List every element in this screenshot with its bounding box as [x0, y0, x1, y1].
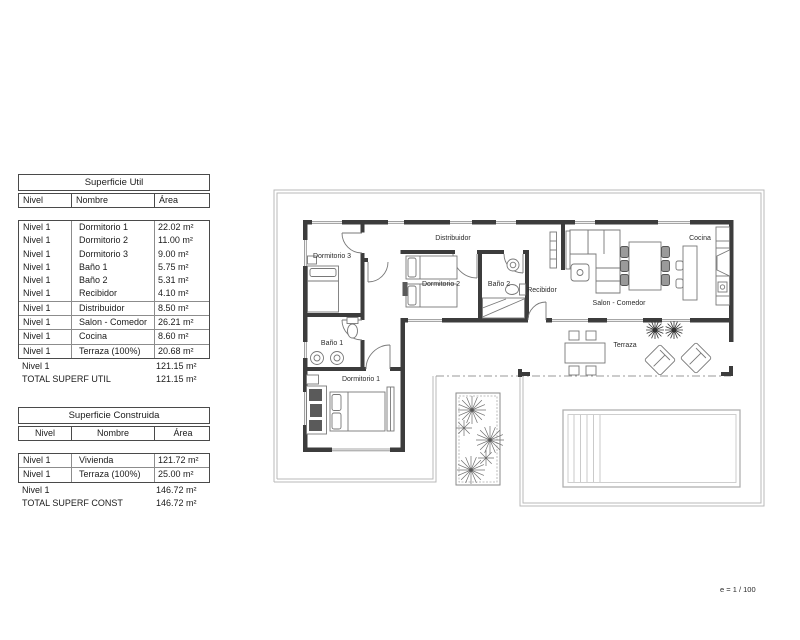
superficie-util-subtotal: Nivel 1 121.15 m² [18, 360, 210, 373]
cell-nivel: Nivel 1 [19, 468, 71, 481]
subtotal-area: 146.72 m² [153, 484, 210, 497]
cell-nombre: Terraza (100%) [71, 345, 154, 358]
table-row: Nivel 1 Baño 1 5.75 m² [19, 261, 209, 274]
floorplan-sheet: Dormitorio 3 Distribuidor Dormitorio 2 B… [0, 0, 800, 640]
cell-area: 5.31 m² [154, 274, 211, 287]
total-label: TOTAL SUPERF UTIL [18, 373, 153, 386]
table-row: Nivel 1 Dormitorio 3 9.00 m² [19, 248, 209, 261]
cell-nombre: Distribuidor [71, 302, 154, 315]
room-label-dormitorio3: Dormitorio 3 [313, 253, 351, 260]
header-nivel: Nivel [19, 427, 71, 440]
cell-nombre: Salon - Comedor [71, 316, 154, 329]
superficie-construida-rows: Nivel 1 Vivienda 121.72 m² Nivel 1 Terra… [18, 453, 210, 483]
cell-nivel: Nivel 1 [19, 316, 71, 329]
fixtures-bano2 [483, 259, 526, 318]
lounge-chairs [644, 342, 711, 375]
header-nivel: Nivel [19, 194, 71, 207]
tv-panel-salon [566, 231, 570, 269]
total-area: 121.15 m² [153, 373, 210, 386]
header-nombre: Nombre [71, 427, 154, 440]
room-label-salon-comedor: Salon - Comedor [593, 300, 646, 307]
room-label-cocina: Cocina [689, 235, 711, 242]
closet-dormitorio1 [387, 387, 394, 431]
sofa-salon [570, 230, 620, 293]
cell-area: 25.00 m² [154, 468, 211, 481]
total-label: TOTAL SUPERF CONST [18, 497, 153, 510]
subtotal-nivel: Nivel 1 [18, 360, 70, 373]
cell-area: 20.68 m² [154, 345, 211, 358]
superficie-util-table: Superficie Util Nivel Nombre Área Nivel … [18, 174, 210, 386]
table-row: Nivel 1 Dormitorio 1 22.02 m² [19, 221, 209, 234]
cell-nivel: Nivel 1 [19, 261, 71, 274]
room-label-dormitorio2: Dormitorio 2 [422, 281, 460, 288]
terrace-plants [646, 321, 683, 339]
kitchen-island [676, 246, 697, 300]
toilet-bano1 [347, 318, 358, 339]
kitchen-counter [716, 227, 730, 305]
superficie-util-total: TOTAL SUPERF UTIL 121.15 m² [18, 373, 210, 386]
cell-nombre: Dormitorio 2 [71, 234, 154, 247]
cell-nombre: Baño 2 [71, 274, 154, 287]
scale-note: e = 1 / 100 [720, 585, 756, 594]
table-row: Nivel 1 Terraza (100%) 20.68 m² [19, 344, 209, 358]
cell-nombre: Terraza (100%) [71, 468, 154, 481]
dining-table [621, 242, 670, 290]
cell-nombre: Dormitorio 3 [71, 248, 154, 261]
header-nombre: Nombre [71, 194, 154, 207]
header-area: Área [154, 427, 211, 440]
header-area: Área [154, 194, 211, 207]
coffee-table-salon [571, 264, 589, 281]
cell-nombre: Vivienda [71, 454, 154, 467]
subtotal-area: 121.15 m² [153, 360, 210, 373]
sinks-bano1 [311, 352, 344, 365]
room-label-bano2: Baño 2 [488, 281, 510, 288]
cell-nivel: Nivel 1 [19, 274, 71, 287]
cell-area: 8.50 m² [154, 302, 211, 315]
superficie-construida-total: TOTAL SUPERF CONST 146.72 m² [18, 497, 210, 510]
superficie-util-header: Nivel Nombre Área [18, 193, 210, 208]
bed-dormitorio1 [330, 392, 385, 431]
cell-area: 11.00 m² [154, 234, 211, 247]
cell-area: 22.02 m² [154, 221, 211, 234]
table-row: Nivel 1 Recibidor 4.10 m² [19, 287, 209, 300]
bed-dormitorio3 [308, 256, 339, 312]
table-row: Nivel 1 Terraza (100%) 25.00 m² [19, 467, 209, 481]
pool-steps [574, 415, 600, 482]
superficie-construida-table: Superficie Construida Nivel Nombre Área … [18, 407, 210, 510]
cell-nivel: Nivel 1 [19, 221, 71, 234]
table-row: Nivel 1 Dormitorio 2 11.00 m² [19, 234, 209, 247]
cell-nivel: Nivel 1 [19, 454, 71, 467]
room-label-dormitorio1: Dormitorio 1 [342, 376, 380, 383]
room-label-bano1: Baño 1 [321, 340, 343, 347]
cell-nivel: Nivel 1 [19, 345, 71, 358]
cell-nivel: Nivel 1 [19, 330, 71, 343]
room-label-distribuidor: Distribuidor [435, 235, 470, 242]
cell-nivel: Nivel 1 [19, 234, 71, 247]
room-label-terraza: Terraza [613, 342, 636, 349]
table-row: Nivel 1 Distribuidor 8.50 m² [19, 301, 209, 315]
superficie-construida-subtotal: Nivel 1 146.72 m² [18, 484, 210, 497]
cell-area: 8.60 m² [154, 330, 211, 343]
table-row: Nivel 1 Cocina 8.60 m² [19, 329, 209, 343]
cabinet-recibidor [550, 232, 557, 268]
cell-nivel: Nivel 1 [19, 248, 71, 261]
room-label-recibidor: Recibidor [527, 287, 557, 294]
superficie-construida-header: Nivel Nombre Área [18, 426, 210, 441]
superficie-util-rows: Nivel 1 Dormitorio 1 22.02 m² Nivel 1 Do… [18, 220, 210, 359]
cell-nombre: Baño 1 [71, 261, 154, 274]
swimming-pool [563, 410, 740, 487]
planter [456, 393, 504, 485]
cell-nombre: Cocina [71, 330, 154, 343]
cell-nivel: Nivel 1 [19, 287, 71, 300]
cell-nombre: Dormitorio 1 [71, 221, 154, 234]
terrace-table [565, 331, 605, 375]
table-row: Nivel 1 Baño 2 5.31 m² [19, 274, 209, 287]
superficie-construida-title: Superficie Construida [18, 407, 210, 424]
subtotal-nivel: Nivel 1 [18, 484, 70, 497]
cell-area: 121.72 m² [154, 454, 211, 467]
furniture [307, 227, 730, 434]
cell-area: 26.21 m² [154, 316, 211, 329]
cell-area: 9.00 m² [154, 248, 211, 261]
table-row: Nivel 1 Salon - Comedor 26.21 m² [19, 315, 209, 329]
wardrobe-dormitorio1 [307, 375, 327, 434]
cell-nivel: Nivel 1 [19, 302, 71, 315]
table-row: Nivel 1 Vivienda 121.72 m² [19, 454, 209, 467]
cell-area: 5.75 m² [154, 261, 211, 274]
superficie-util-title: Superficie Util [18, 174, 210, 191]
total-area: 146.72 m² [153, 497, 210, 510]
cell-area: 4.10 m² [154, 287, 211, 300]
cell-nombre: Recibidor [71, 287, 154, 300]
